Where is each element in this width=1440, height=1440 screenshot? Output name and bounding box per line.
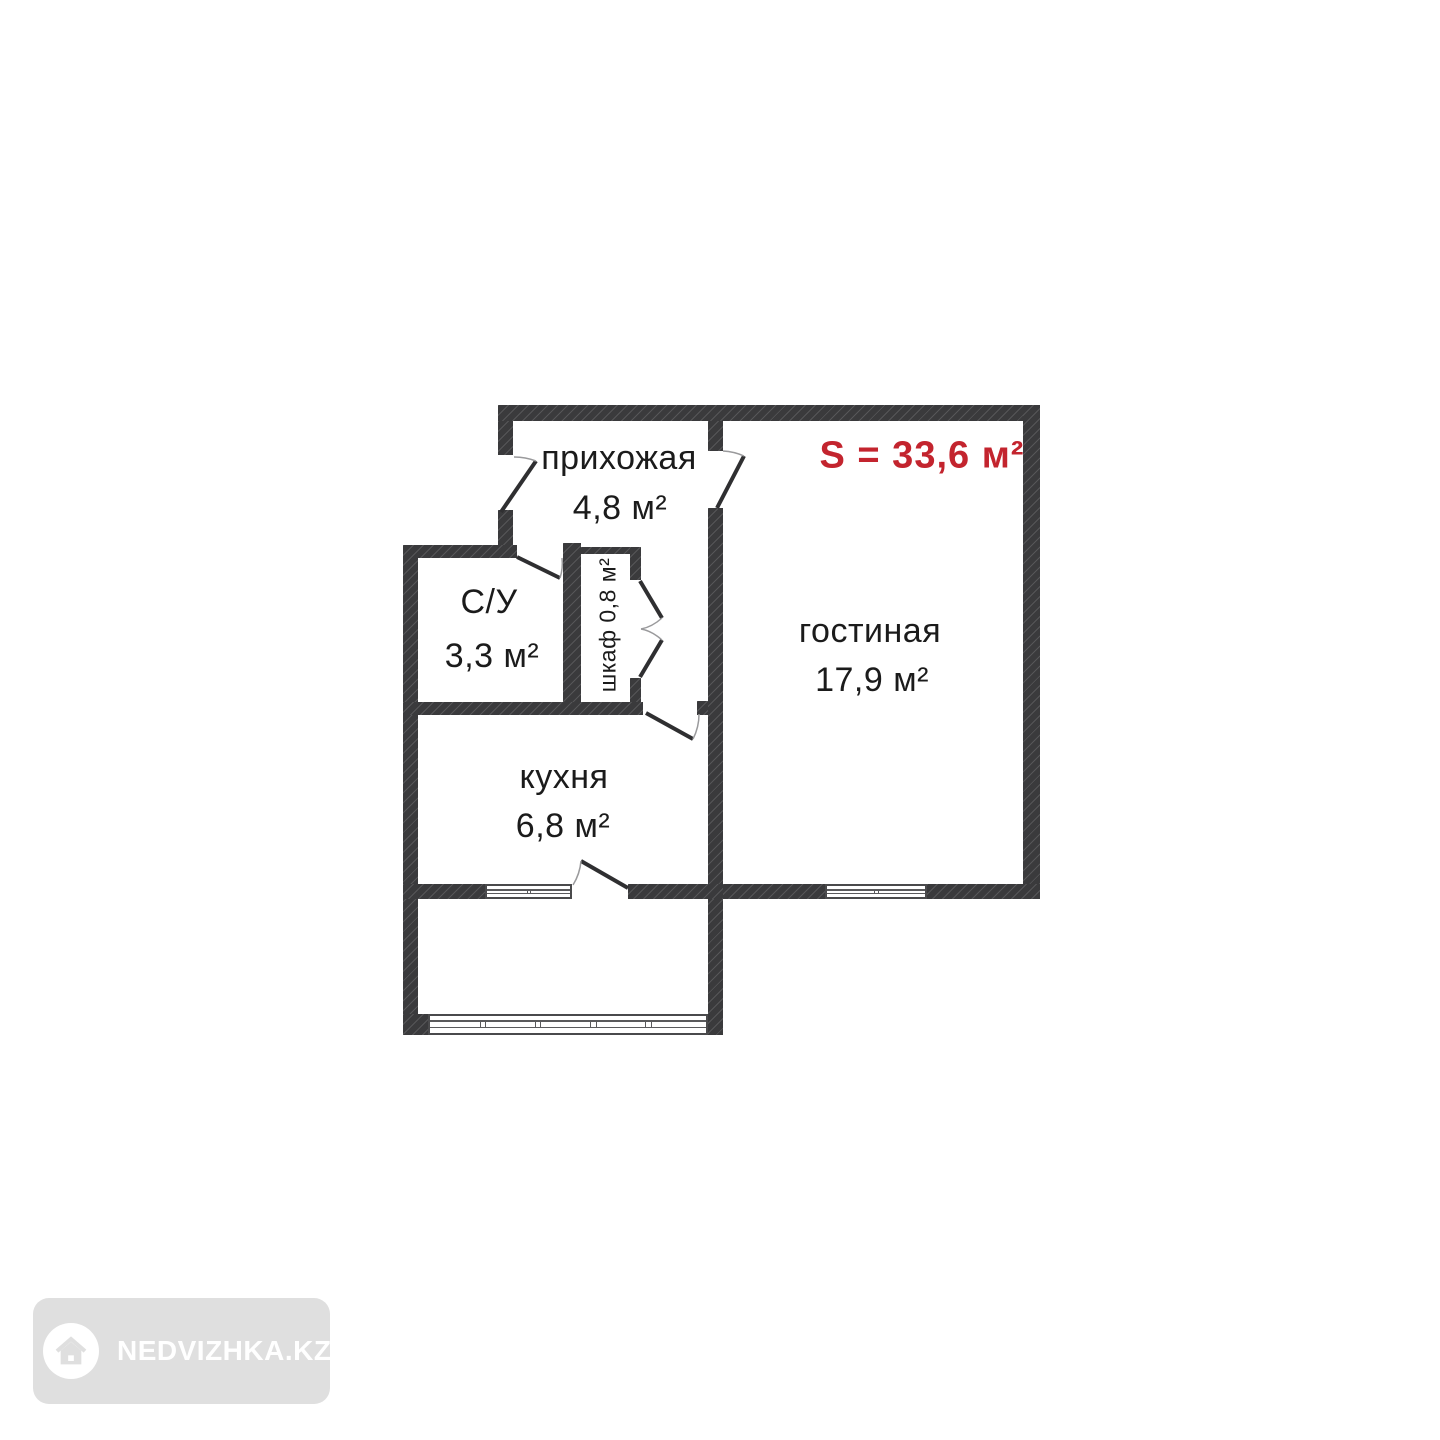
wall-closet-jamb-top [630,547,641,580]
wall-kitchen-bottom-left [403,884,485,899]
wall-living-bottom-right [927,884,1040,899]
wall-center-stub-top [708,421,723,451]
wall-living-bottom-left [723,884,825,899]
floor-plan-canvas: S = 33,6 м² прихожая 4,8 м² С/У 3,3 м² ш… [0,0,1440,1440]
kitchen-area: 6,8 м² [516,809,610,843]
wall-left [403,545,418,1035]
wall-bathroom-closet [563,543,581,715]
wall-entry-stub-top [498,421,513,455]
living-room-door [717,451,744,508]
hallway-name: прихожая [541,441,697,475]
house-icon [43,1323,99,1379]
wall-kitchen-bottom-right [628,884,723,899]
wall-center-vertical [708,508,723,1035]
kitchen-name: кухня [520,760,609,794]
wall-top [498,405,1040,421]
bathroom-name: С/У [460,585,517,619]
hallway-area: 4,8 м² [573,491,667,525]
entry-door [501,457,536,512]
watermark-brand: NEDVIZHKA.KZ [117,1298,331,1404]
wall-balcony-foot-left [403,1014,428,1035]
kitchen-door [646,713,699,739]
balcony-door [573,861,628,888]
closet-bifold-door [640,581,662,677]
bathroom-area: 3,3 м² [445,639,539,673]
wall-bathroom-top [403,545,517,558]
wall-mid-horizontal [403,702,643,715]
living-room-window [825,884,927,899]
wall-right [1023,405,1040,899]
kitchen-window [485,884,572,899]
watermark-badge: NEDVIZHKA.KZ [33,1298,330,1404]
living-room-name: гостиная [799,614,941,648]
closet-label: шкаф 0,8 м² [597,558,620,692]
balcony-glazing-band [428,1014,708,1035]
living-room-area: 17,9 м² [815,663,929,697]
bathroom-door [517,557,562,578]
wall-kitchen-door-jamb [697,701,708,715]
total-area-label: S = 33,6 м² [820,435,1025,478]
